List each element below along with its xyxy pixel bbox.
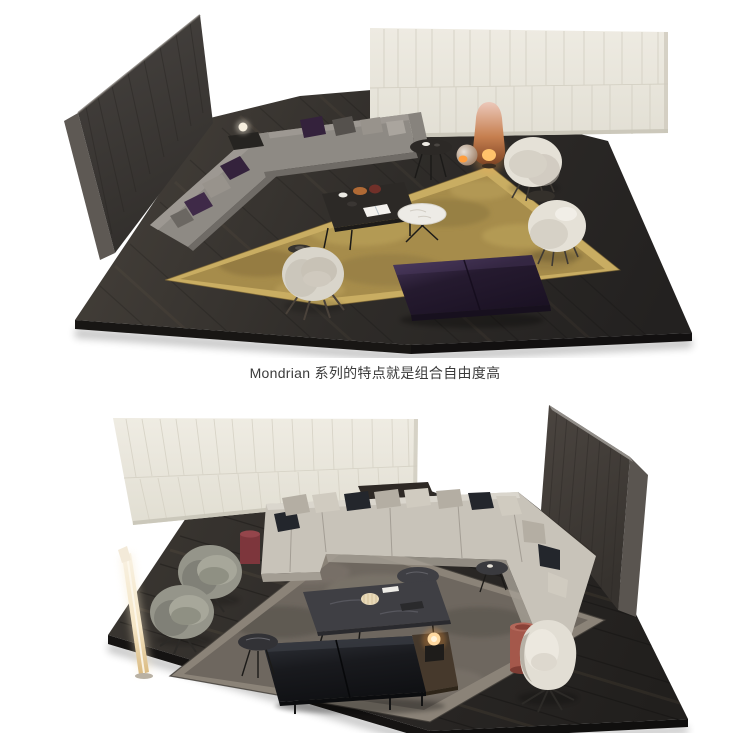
copper-cone-floor-lamp [473,102,505,174]
product-image-bottom [60,392,705,733]
gray-armchair-with-tray [282,245,344,321]
ribbed-bowl [361,593,379,605]
scene-bottom-illustration [60,392,705,733]
page: Mondrian 系列的特点就是组合自由度高 [0,0,750,733]
cream-armchair-lower [528,200,586,266]
scene-top-illustration [60,8,705,358]
product-image-top [60,8,705,358]
purple-velvet-ottoman [393,255,551,328]
image-caption: Mondrian 系列的特点就是组合自由度高 [0,363,750,383]
burgundy-side-table [240,530,260,564]
glass-dome-lamp [457,145,478,166]
amber-table-lamp [422,628,446,662]
cream-armchair-upper [504,137,562,201]
cream-egg-chair [518,620,578,712]
sphere-table-lamp [236,120,251,135]
armchair-side-table [527,191,555,202]
